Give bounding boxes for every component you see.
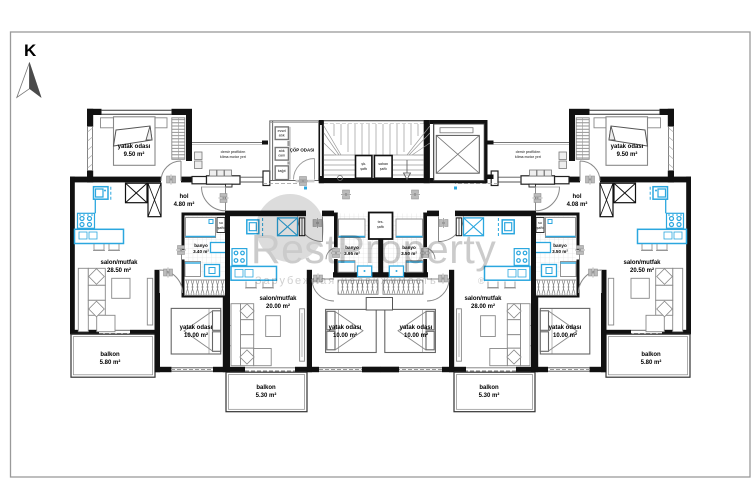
svg-text:5.80 m²: 5.80 m² — [641, 359, 662, 366]
svg-text:28.00 m²: 28.00 m² — [471, 303, 495, 310]
svg-text:10.00 m²: 10.00 m² — [184, 332, 208, 339]
svg-text:yatak odası: yatak odası — [180, 325, 213, 331]
svg-text:hol: hol — [180, 194, 189, 200]
svg-text:klima motor yeri: klima motor yeri — [220, 155, 246, 159]
svg-text:3.50 m²: 3.50 m² — [552, 249, 568, 254]
svg-text:cam: cam — [278, 154, 285, 158]
svg-text:5.30 m²: 5.30 m² — [479, 392, 500, 399]
svg-text:sahan: sahan — [378, 162, 388, 166]
svg-text:20.00 m²: 20.00 m² — [266, 303, 290, 310]
svg-text:4.08 m²: 4.08 m² — [567, 201, 588, 208]
svg-text:balkon: balkon — [100, 352, 120, 358]
svg-text:klima motor yeri: klima motor yeri — [515, 155, 541, 159]
svg-text:5.30 m²: 5.30 m² — [256, 392, 277, 399]
svg-text:demir profilden: demir profilden — [221, 150, 246, 154]
svg-text:10.00 m²: 10.00 m² — [404, 332, 428, 339]
svg-text:yatak odası: yatak odası — [329, 325, 362, 331]
svg-text:balkon: balkon — [479, 385, 499, 391]
svg-text:salon/mutfak: salon/mutfak — [259, 296, 297, 302]
svg-text:salon/mutfak: salon/mutfak — [100, 260, 138, 266]
svg-text:3.40 m²: 3.40 m² — [193, 249, 209, 254]
svg-text:10.00 m²: 10.00 m² — [553, 332, 577, 339]
svg-text:balkon: balkon — [641, 352, 661, 358]
svg-text:şb.: şb. — [361, 162, 366, 166]
svg-text:şaftı: şaftı — [360, 167, 367, 171]
svg-text:balkon: balkon — [256, 385, 276, 391]
svg-text:salon/mutfak: salon/mutfak — [464, 296, 502, 302]
svg-text:şaftı: şaftı — [537, 226, 544, 230]
svg-text:9.50 m²: 9.50 m² — [617, 151, 638, 158]
svg-text:K: K — [24, 41, 37, 60]
svg-text:®: ® — [478, 276, 485, 286]
svg-text:salon/mutfak: salon/mutfak — [623, 260, 661, 266]
svg-text:şaftı: şaftı — [380, 167, 387, 171]
svg-text:RestProperty: RestProperty — [251, 226, 496, 272]
svg-text:9.50 m²: 9.50 m² — [124, 151, 145, 158]
svg-text:banyo: banyo — [553, 243, 567, 248]
svg-text:20.50 m²: 20.50 m² — [630, 267, 654, 274]
svg-text:yatak odası: yatak odası — [400, 325, 433, 331]
svg-text:atık: atık — [279, 149, 285, 153]
svg-text:kağıt: kağıt — [278, 169, 287, 173]
svg-text:su: su — [219, 221, 223, 225]
svg-text:10.00 m²: 10.00 m² — [333, 332, 357, 339]
svg-text:28.50 m²: 28.50 m² — [107, 267, 131, 274]
svg-text:5.80 m²: 5.80 m² — [100, 359, 121, 366]
svg-text:şaftı: şaftı — [218, 226, 225, 230]
svg-text:yatak odası: yatak odası — [611, 144, 644, 150]
svg-text:yatak odası: yatak odası — [549, 325, 582, 331]
svg-text:banyo: banyo — [194, 243, 208, 248]
svg-text:yatak odası: yatak odası — [118, 144, 151, 150]
svg-text:4.80 m²: 4.80 m² — [174, 201, 195, 208]
svg-text:hol: hol — [573, 194, 582, 200]
svg-text:atık: atık — [279, 134, 285, 138]
svg-text:Зарубежная недвижимость: Зарубежная недвижимость — [255, 275, 438, 287]
svg-text:evsel: evsel — [277, 129, 286, 133]
svg-text:su: su — [538, 221, 542, 225]
svg-text:demir profilden: demir profilden — [516, 150, 541, 154]
svg-text:ÇÖP ODASI: ÇÖP ODASI — [290, 148, 315, 153]
svg-text:tes.: tes. — [378, 220, 384, 224]
